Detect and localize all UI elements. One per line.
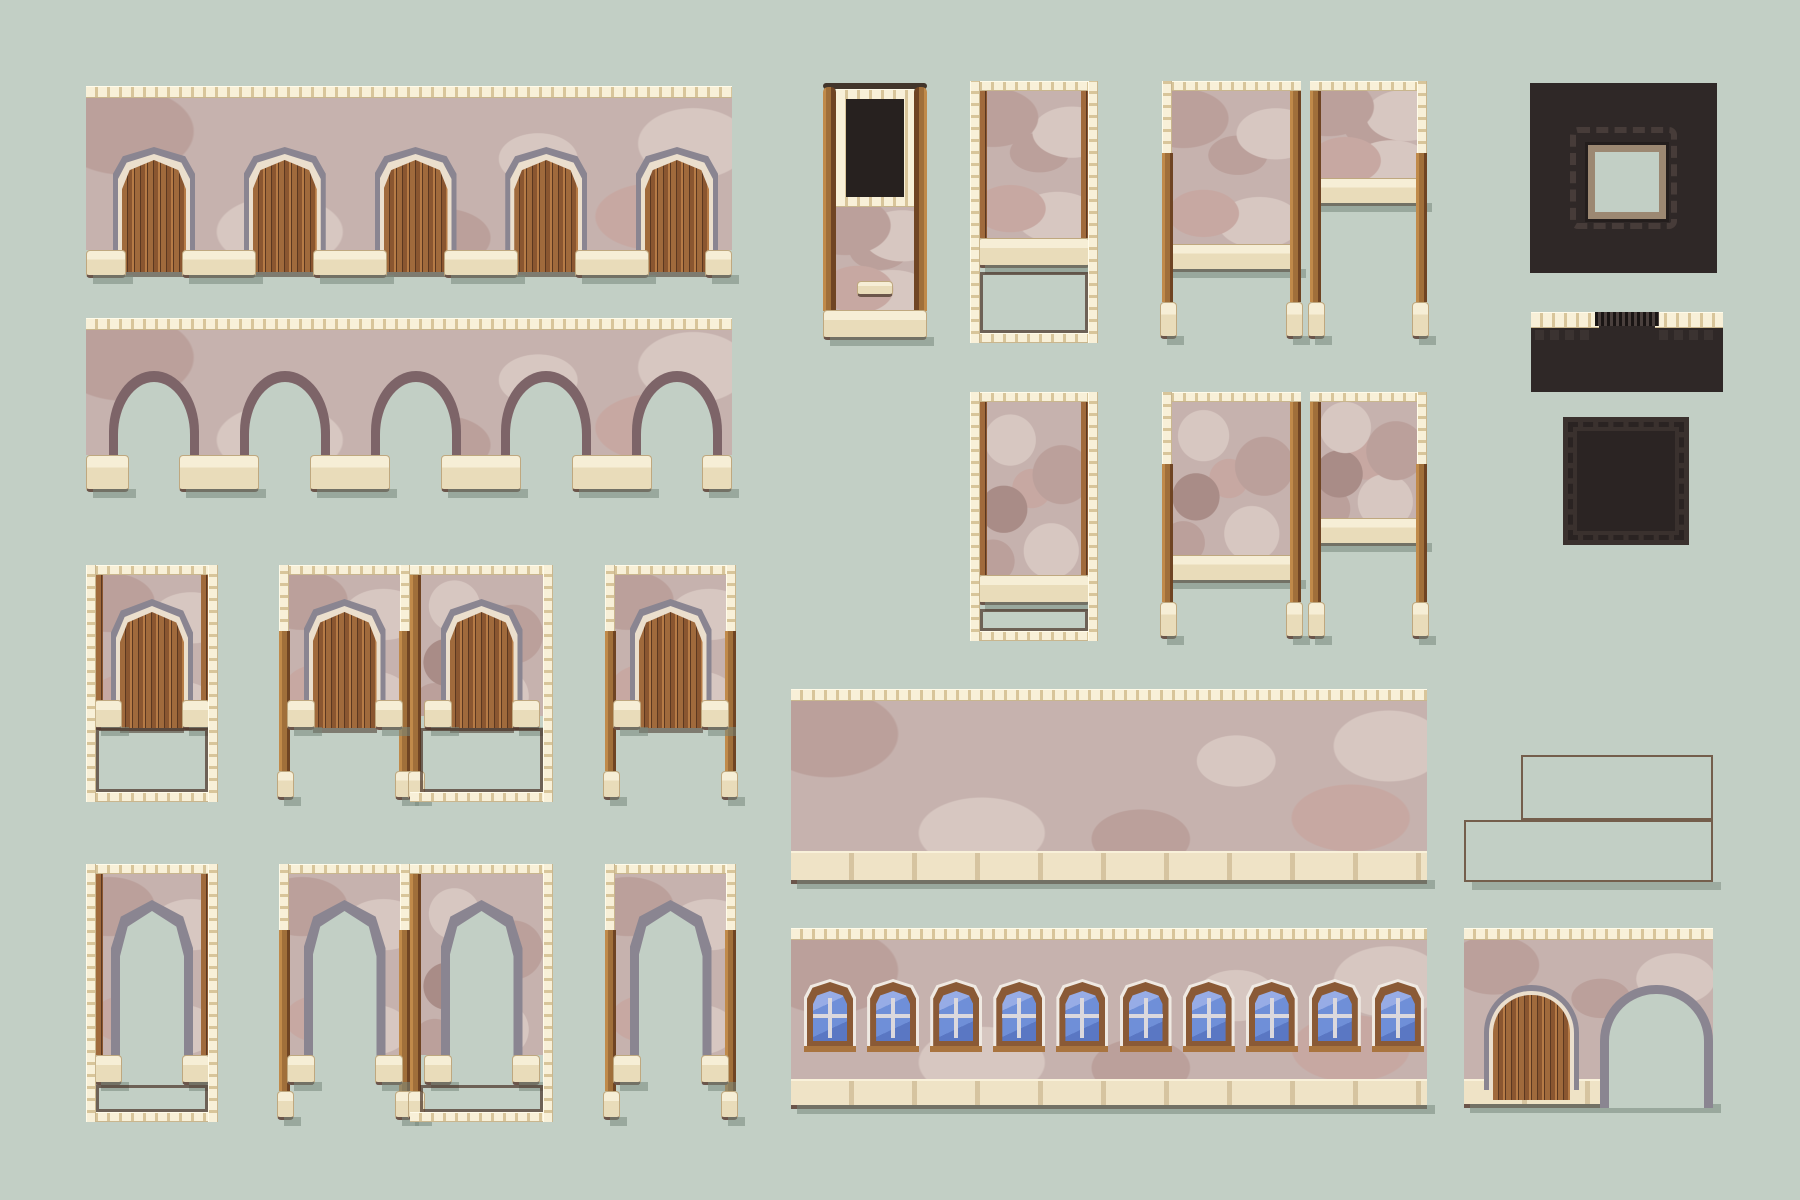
open-interior	[420, 1085, 543, 1112]
frame-right	[726, 565, 736, 631]
pier-sill	[705, 250, 732, 278]
frame-top	[605, 565, 736, 575]
post-foot	[1308, 302, 1325, 339]
side-trim	[980, 91, 987, 238]
platform-hole	[1588, 145, 1666, 219]
panel-stone	[980, 402, 1088, 575]
foundation	[791, 1079, 1427, 1109]
edge-trim	[1655, 312, 1723, 328]
open-cell-framed	[970, 81, 1098, 343]
post-foot	[1286, 302, 1303, 339]
jamb-sill	[613, 700, 641, 730]
frame-left	[86, 565, 96, 802]
mullion-v	[1333, 998, 1337, 1038]
gate-pillars-cobble	[1162, 392, 1427, 641]
jamb-sill	[424, 1055, 452, 1085]
frame-top	[1310, 392, 1427, 402]
foundation	[791, 851, 1427, 884]
mullion-h	[1192, 1014, 1226, 1018]
arch-opening	[1609, 994, 1704, 1108]
support-post	[1416, 464, 1427, 602]
post-foot	[1412, 602, 1429, 639]
post-foot	[1160, 602, 1177, 639]
mullion-h	[939, 1014, 973, 1018]
frame-left	[86, 864, 96, 1122]
cornice	[791, 928, 1427, 940]
jamb-sill	[375, 700, 403, 730]
post-foot	[277, 1091, 294, 1120]
window-sill	[804, 1046, 856, 1052]
mullion-v	[1080, 998, 1084, 1038]
frame-bottom	[970, 631, 1098, 641]
post-foot	[721, 771, 738, 800]
cornice	[86, 318, 732, 330]
panel-stone	[980, 91, 1088, 238]
post-foot	[1308, 602, 1325, 639]
panel-stone	[1316, 91, 1421, 178]
window-sill	[993, 1046, 1045, 1052]
side-trim	[96, 874, 103, 1055]
door-shadow	[639, 728, 703, 733]
frame-right	[400, 565, 410, 631]
open-interior	[980, 272, 1088, 333]
mullion-h	[1381, 1014, 1415, 1018]
tileset-canvas	[0, 0, 1800, 1200]
side-trim	[980, 402, 987, 575]
pier-sill	[182, 250, 256, 278]
mullion-h	[813, 1014, 847, 1018]
cornice	[1464, 928, 1713, 940]
pier-foot	[441, 455, 521, 492]
frame-top	[1162, 81, 1301, 91]
mullion-h	[1002, 1014, 1036, 1018]
gate-pillars	[1162, 81, 1427, 341]
frame-top	[1310, 81, 1427, 91]
post-foot	[277, 771, 294, 800]
mullion-v	[1270, 998, 1274, 1038]
window-sill	[1309, 1046, 1361, 1052]
wooden-door	[639, 612, 703, 728]
ledge	[1312, 178, 1425, 206]
frame-top	[86, 565, 218, 575]
dark-stitched-pad	[1563, 417, 1689, 545]
support-post	[1416, 153, 1427, 302]
large-stone-wall	[791, 689, 1427, 884]
window-sill	[1056, 1046, 1108, 1052]
frame-right	[1417, 392, 1427, 464]
wooden-door	[1493, 995, 1570, 1100]
mullion-h	[1065, 1014, 1099, 1018]
frame-top	[410, 864, 553, 874]
stitch-row	[1535, 330, 1595, 340]
arch-opening	[120, 911, 184, 1085]
pier-foot	[702, 455, 732, 492]
post-foot	[721, 1091, 738, 1120]
open-interior	[96, 1085, 208, 1112]
comb-teeth	[1595, 312, 1659, 326]
jamb-sill	[94, 700, 122, 730]
jamb-sill	[182, 1055, 210, 1085]
pillar-base	[823, 310, 927, 340]
jamb-sill	[512, 700, 540, 730]
dark-inset	[1577, 431, 1675, 531]
arch-cell-posts	[279, 864, 410, 1122]
frame-left	[1162, 392, 1172, 464]
frame-bottom	[410, 792, 553, 802]
frame-top	[970, 81, 1098, 91]
frame-right	[1088, 81, 1098, 343]
side-trim	[1081, 91, 1088, 238]
door-cell-framed	[86, 565, 218, 802]
post-foot	[1412, 302, 1429, 339]
mullion-h	[1255, 1014, 1289, 1018]
ledge	[1164, 555, 1299, 583]
jamb-sill	[287, 700, 315, 730]
wooden-door	[122, 160, 186, 272]
dark-ledge-strip	[1531, 312, 1723, 392]
frame-right	[208, 565, 218, 802]
ledge	[978, 238, 1090, 268]
frame-left	[279, 565, 289, 631]
ledge	[1312, 518, 1425, 546]
frame-bottom	[410, 1112, 553, 1122]
pier-foot	[179, 455, 259, 492]
support-post	[1162, 464, 1173, 602]
mullion-v	[1144, 998, 1148, 1038]
frame-right	[400, 864, 410, 930]
window-wall	[791, 928, 1427, 1109]
support-post	[1310, 402, 1321, 602]
wooden-door	[120, 612, 184, 728]
support-post	[410, 874, 421, 1091]
pier-sill	[444, 250, 518, 278]
post-foot	[1286, 602, 1303, 639]
brick-step-upper	[1521, 755, 1713, 820]
pier-sill	[86, 250, 126, 278]
doorway-pillar	[823, 83, 927, 340]
arch-opening	[313, 911, 377, 1085]
support-post	[1290, 402, 1301, 602]
jamb-sill	[94, 1055, 122, 1085]
side-trim	[201, 874, 208, 1055]
arcade-wall-with-doors	[86, 86, 732, 278]
frame-left	[605, 565, 615, 631]
wooden-door	[645, 160, 709, 272]
post-foot	[603, 771, 620, 800]
ledge	[1164, 244, 1299, 272]
panel-stone	[1168, 402, 1295, 555]
arch-opening	[450, 911, 514, 1085]
pillar-post	[914, 87, 927, 311]
mullion-h	[1318, 1014, 1352, 1018]
edge-trim	[1531, 312, 1599, 328]
side-trim	[1081, 402, 1088, 575]
step-shadow	[1472, 882, 1721, 890]
dark-platform-with-hole	[1530, 83, 1717, 273]
cornice	[791, 689, 1427, 701]
post-foot	[603, 1091, 620, 1120]
support-post	[1162, 153, 1173, 302]
open-interior	[980, 609, 1088, 631]
wooden-door	[384, 160, 448, 272]
mullion-v	[891, 998, 895, 1038]
pier-foot	[310, 455, 390, 492]
door-shadow	[313, 728, 377, 733]
window-sill	[1372, 1046, 1424, 1052]
frame-top	[279, 864, 410, 874]
window-sill	[1246, 1046, 1298, 1052]
jamb-sill	[613, 1055, 641, 1085]
pillar-post	[823, 87, 836, 311]
frame-bottom	[970, 333, 1098, 343]
frame-right	[208, 864, 218, 1122]
door-and-arch-wall	[1464, 928, 1713, 1108]
window-sill	[867, 1046, 919, 1052]
frame-top	[279, 565, 410, 575]
jamb-sill	[182, 700, 210, 730]
pier-sill	[575, 250, 649, 278]
jamb-sill	[701, 700, 729, 730]
cornice	[86, 86, 732, 98]
mullion-v	[828, 998, 832, 1038]
dark-doorway	[846, 99, 904, 197]
post-foot	[1160, 302, 1177, 339]
frame-left	[1162, 81, 1172, 153]
frame-right	[1088, 392, 1098, 641]
wooden-door	[253, 160, 317, 272]
pier-sill	[313, 250, 387, 278]
jamb-sill	[287, 1055, 315, 1085]
jamb-sill	[512, 1055, 540, 1085]
window-sill	[1183, 1046, 1235, 1052]
mullion-h	[1129, 1014, 1163, 1018]
frame-top	[970, 392, 1098, 402]
ledge	[978, 575, 1090, 605]
frame-left	[605, 864, 615, 930]
pier-foot	[572, 455, 652, 492]
panel-stone	[1168, 91, 1295, 244]
frame-right	[1417, 81, 1427, 153]
arch-cell-cobble	[410, 864, 553, 1122]
wall-face	[791, 701, 1427, 851]
door-cell-posts	[279, 565, 410, 802]
mullion-v	[1396, 998, 1400, 1038]
window-sill	[930, 1046, 982, 1052]
frame-left	[279, 864, 289, 930]
brick-step-lower	[1464, 820, 1713, 882]
frame-right	[726, 864, 736, 930]
aqueduct-arch-bridge	[86, 318, 732, 492]
frame-right	[543, 864, 553, 1122]
frame-bottom	[86, 1112, 218, 1122]
frame-left	[970, 392, 980, 641]
frame-left	[970, 81, 980, 343]
frame-top	[86, 864, 218, 874]
panel-stone	[1316, 402, 1421, 518]
mullion-v	[1207, 998, 1211, 1038]
mullion-v	[1017, 998, 1021, 1038]
jamb-sill	[424, 700, 452, 730]
wooden-door	[514, 160, 578, 272]
frame-top	[410, 565, 553, 575]
door-cell-posts-2	[605, 565, 736, 802]
arch-opening	[639, 911, 703, 1085]
support-post	[1310, 91, 1321, 302]
corbel	[857, 281, 893, 297]
stitch-row	[1659, 330, 1719, 340]
door-cell-cobble	[410, 565, 553, 802]
frame-top	[1162, 392, 1301, 402]
window-sill	[1120, 1046, 1172, 1052]
mullion-v	[954, 998, 958, 1038]
support-post	[1290, 91, 1301, 302]
jamb-sill	[375, 1055, 403, 1085]
frame-bottom	[86, 792, 218, 802]
arch-cell-framed	[86, 864, 218, 1122]
pier-foot	[86, 455, 129, 492]
frame-top	[605, 864, 736, 874]
wooden-door	[450, 612, 514, 728]
open-cell-cobble	[970, 392, 1098, 641]
mullion-h	[876, 1014, 910, 1018]
frame-right	[543, 565, 553, 802]
open-interior	[420, 728, 543, 792]
arch-cell-posts-2	[605, 864, 736, 1122]
jamb-sill	[701, 1055, 729, 1085]
wooden-door	[313, 612, 377, 728]
open-interior	[96, 728, 208, 792]
